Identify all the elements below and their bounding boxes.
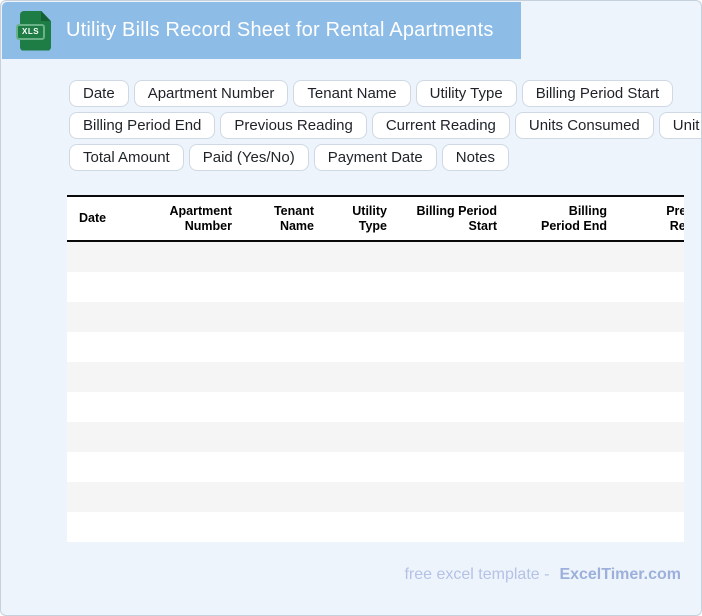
table-header-line: Date — [79, 211, 106, 226]
column-tag: Previous Reading — [220, 112, 366, 139]
table-row — [67, 332, 684, 362]
column-tag: Current Reading — [372, 112, 510, 139]
table-row — [67, 242, 684, 272]
table-row — [67, 452, 684, 482]
folded-corner — [41, 11, 51, 22]
table-header-cell: Billing PeriodStart — [394, 197, 504, 240]
table-header-line: Utility — [352, 204, 387, 219]
column-tag: Units Consumed — [515, 112, 654, 139]
column-tag: Utility Type — [416, 80, 517, 107]
table-header-cell: UtilityType — [321, 197, 394, 240]
column-tag: Date — [69, 80, 129, 107]
header-banner: XLS Utility Bills Record Sheet for Renta… — [2, 2, 521, 59]
column-tag: Total Amount — [69, 144, 184, 171]
table-header-cell: PreviousReading — [614, 197, 684, 240]
page-title: Utility Bills Record Sheet for Rental Ap… — [66, 19, 494, 42]
table-header-line: Name — [280, 219, 314, 234]
column-tag: Payment Date — [314, 144, 437, 171]
column-tag: Billing Period End — [69, 112, 215, 139]
column-tag: Tenant Name — [293, 80, 410, 107]
footer-caption: free excel template - — [404, 566, 549, 584]
table-row — [67, 422, 684, 452]
table-header-cell: Date — [67, 197, 119, 240]
xls-icon-label: XLS — [16, 24, 45, 40]
table-body — [67, 242, 684, 542]
table-header-cell: BillingPeriod End — [504, 197, 614, 240]
table-row — [67, 272, 684, 302]
column-tag: Unit Rate — [659, 112, 702, 139]
table-header-line: Start — [469, 219, 497, 234]
footer: free excel template - ExcelTimer.com — [404, 566, 681, 584]
table-header-line: Apartment — [169, 204, 232, 219]
table-header-cell: TenantName — [239, 197, 321, 240]
xls-file-icon: XLS — [20, 11, 51, 51]
record-table: DateApartmentNumberTenantNameUtilityType… — [67, 195, 684, 542]
column-tag-row: Billing Period EndPrevious ReadingCurren… — [69, 112, 701, 139]
table-header-line: Number — [185, 219, 232, 234]
table-row — [67, 482, 684, 512]
column-tag: Notes — [442, 144, 509, 171]
column-tag-row: Total AmountPaid (Yes/No)Payment DateNot… — [69, 144, 701, 171]
table-row — [67, 302, 684, 332]
column-tag: Billing Period Start — [522, 80, 673, 107]
column-tag-row: DateApartment NumberTenant NameUtility T… — [69, 80, 701, 107]
table-header: DateApartmentNumberTenantNameUtilityType… — [67, 195, 684, 242]
column-tag: Apartment Number — [134, 80, 289, 107]
table-row — [67, 362, 684, 392]
table-header-line: Period End — [541, 219, 607, 234]
table-header-line: Tenant — [274, 204, 314, 219]
table-row — [67, 512, 684, 542]
table-row — [67, 392, 684, 422]
column-tag: Paid (Yes/No) — [189, 144, 309, 171]
brand-link[interactable]: ExcelTimer.com — [559, 566, 681, 584]
column-tags: DateApartment NumberTenant NameUtility T… — [69, 80, 701, 176]
table-header-line: Reading — [670, 219, 684, 234]
table-header-cell: ApartmentNumber — [119, 197, 239, 240]
table-header-line: Type — [359, 219, 387, 234]
table-header-line: Billing Period — [416, 204, 497, 219]
table-header-line: Previous — [666, 204, 684, 219]
template-preview-card: XLS Utility Bills Record Sheet for Renta… — [0, 0, 702, 616]
table-header-line: Billing — [569, 204, 607, 219]
